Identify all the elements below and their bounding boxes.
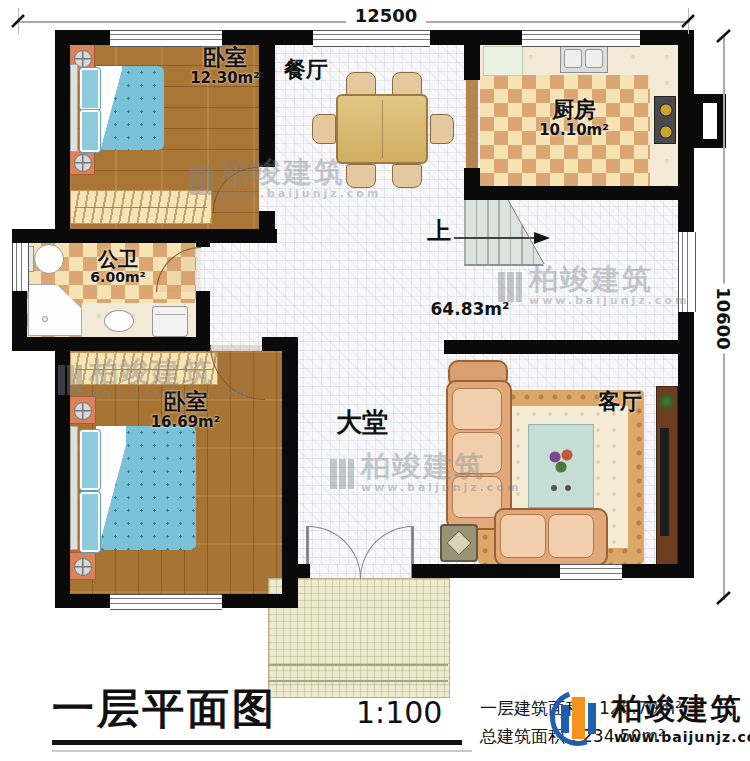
sofa-cushion — [452, 388, 502, 430]
wall-bathroom-right — [196, 229, 210, 247]
bedroom2-wardrobe — [70, 352, 218, 385]
dining-table — [336, 94, 428, 164]
bed-headboard — [70, 64, 78, 152]
room-name: 餐厅 — [270, 58, 342, 82]
sofa-cushion — [548, 514, 594, 558]
lamp-icon — [74, 154, 92, 172]
wall-left-lower — [55, 345, 70, 608]
flower-vase — [545, 445, 577, 477]
lamp-icon — [74, 558, 92, 576]
hall-area-label: 64.83m² — [415, 300, 525, 319]
wall-kitchen-left — [464, 30, 480, 80]
room-area: 12.30m² — [170, 70, 280, 87]
room-name: 卧室 — [128, 390, 243, 414]
wall-entrance-left — [282, 564, 310, 578]
plan-scale: 1:100 — [356, 696, 466, 729]
window-bathroom-left — [12, 243, 29, 291]
window-living-bottom — [560, 564, 622, 580]
stairs-up-label: 上 — [424, 218, 454, 244]
kitchen-flue — [694, 94, 726, 148]
room-name: 卧室 — [170, 46, 280, 70]
dining-chair — [392, 72, 422, 96]
window-dining-top — [313, 30, 430, 47]
window-right — [678, 232, 696, 312]
dining-label: 餐厅 — [270, 58, 342, 82]
lamp-icon — [74, 402, 92, 420]
dining-chair — [430, 114, 454, 144]
wall-kitchen-bottom — [464, 186, 694, 200]
fridge — [483, 46, 523, 76]
dining-chair — [312, 114, 336, 144]
brand-logo-icon — [548, 688, 610, 750]
wardrobe-rod — [75, 369, 212, 370]
wall-corridor-living — [444, 340, 694, 354]
dimension-extension — [688, 8, 689, 34]
dimension-extension — [18, 8, 19, 34]
porch-step-line — [268, 680, 448, 682]
shower-drain — [42, 316, 48, 322]
sofa-cushion — [452, 476, 502, 518]
room-area: 6.00m² — [76, 270, 160, 285]
porch-step-line — [268, 664, 448, 666]
bathroom-sink — [104, 310, 134, 332]
room-name: 厨房 — [518, 98, 630, 122]
window-bedroom2-bottom — [110, 594, 222, 610]
pillow — [80, 492, 100, 552]
nightstand — [68, 552, 96, 580]
wall-left-upper — [55, 30, 70, 243]
title-underline-thin — [52, 750, 472, 752]
room-area: 10.10m² — [518, 122, 630, 139]
side-table — [440, 524, 478, 562]
brand-name: 柏竣建筑 — [612, 692, 750, 725]
nightstand — [68, 148, 95, 175]
wall-entrance-right — [412, 564, 462, 578]
kitchen-entry-threshold — [466, 80, 478, 168]
hall-label: 大堂 — [322, 408, 402, 437]
bed-headboard — [70, 426, 78, 550]
plan-title: 一层平面图 — [52, 686, 352, 732]
room-name: 公卫 — [76, 248, 160, 270]
sofa-cushion — [452, 432, 502, 474]
dimension-height-label: 10600 — [713, 284, 734, 354]
pillow — [80, 430, 100, 490]
brand-site: www.baijunjz.com — [614, 730, 750, 745]
dimension-width-label: 12500 — [346, 5, 426, 26]
dining-chair — [392, 164, 422, 188]
bedroom2-label: 卧室 16.69m² — [128, 390, 243, 431]
stove — [654, 96, 676, 144]
bed-sheet — [96, 426, 126, 550]
washing-machine — [152, 306, 188, 337]
wardrobe-rod — [75, 207, 207, 208]
wall-bedroom1-bottom — [55, 229, 277, 243]
dining-chair — [346, 164, 376, 188]
pillow — [80, 110, 100, 152]
tv — [660, 428, 669, 536]
kitchen-sink — [560, 45, 608, 73]
nightstand — [68, 396, 96, 424]
bedroom1-label: 卧室 12.30m² — [170, 46, 280, 87]
sofa-cushion — [500, 514, 546, 558]
bedroom1-wardrobe — [70, 190, 212, 224]
window-kitchen-top — [522, 30, 640, 47]
pillow — [80, 68, 100, 110]
living-label: 客厅 — [580, 390, 660, 414]
room-area: 16.69m² — [128, 414, 243, 431]
floor-plan: 卧室 12.30m² 餐厅 厨房 10.10m² 公卫 6.00m² 卧室 16… — [0, 0, 750, 761]
plant — [659, 394, 674, 409]
toilet-bowl — [34, 244, 64, 274]
bathroom-label: 公卫 6.00m² — [76, 248, 160, 285]
title-underline-thick — [52, 740, 462, 745]
wall-bedroom1-right — [259, 211, 275, 243]
kitchen-label: 厨房 10.10m² — [518, 98, 630, 139]
wall-bathroom-bottom — [12, 337, 210, 351]
dining-chair — [346, 72, 376, 96]
coffee-table — [528, 424, 594, 508]
